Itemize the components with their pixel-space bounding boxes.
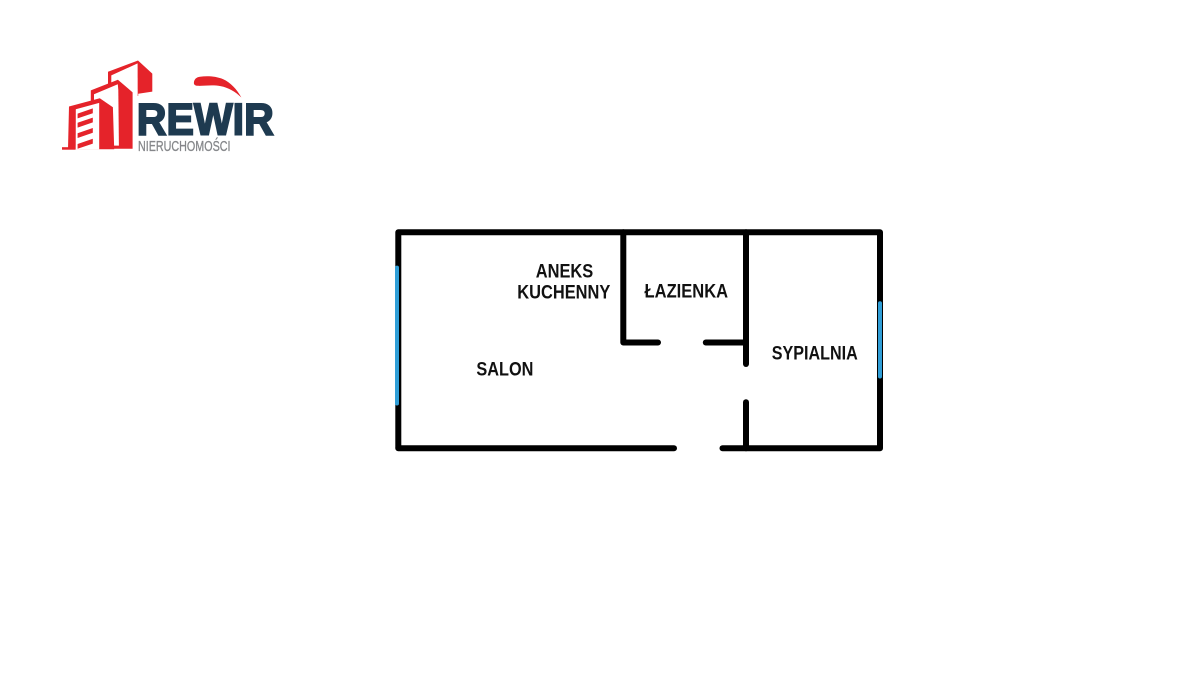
- svg-text:ŁAZIENKA: ŁAZIENKA: [645, 280, 729, 302]
- svg-text:SALON: SALON: [476, 358, 533, 380]
- svg-text:ANEKS: ANEKS: [536, 261, 594, 283]
- svg-text:KUCHENNY: KUCHENNY: [517, 281, 610, 303]
- svg-text:SYPIALNIA: SYPIALNIA: [772, 342, 858, 364]
- svg-text:REWIR: REWIR: [137, 96, 274, 145]
- svg-text:NIERUCHOMOŚCI: NIERUCHOMOŚCI: [138, 137, 231, 155]
